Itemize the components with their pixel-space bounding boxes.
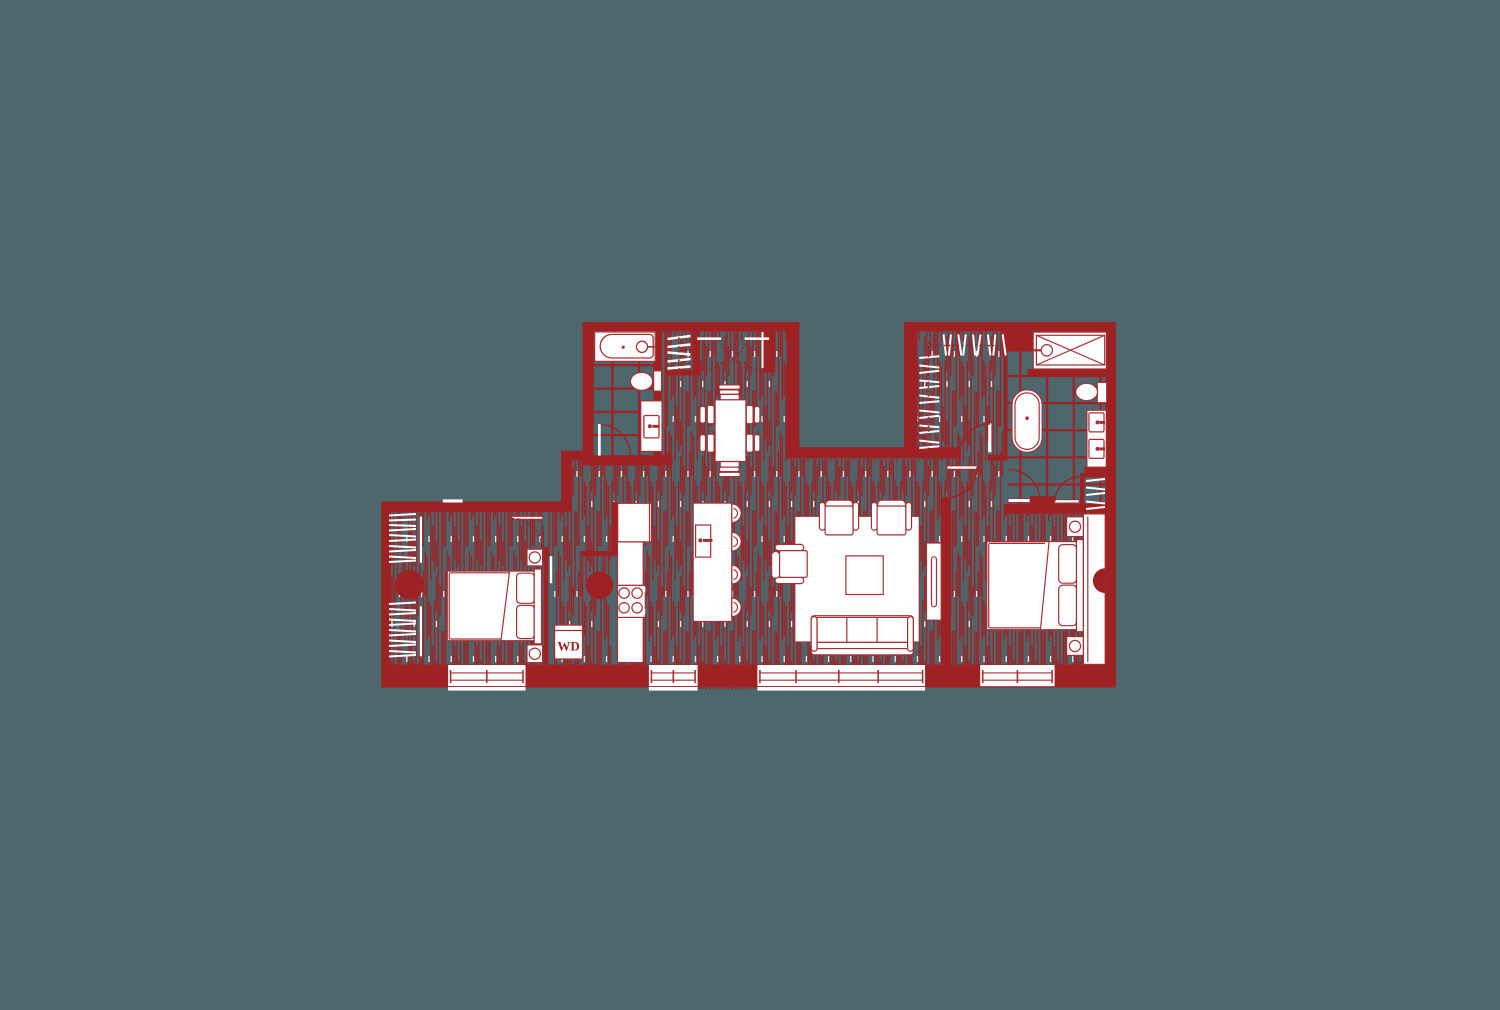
svg-text:WD: WD	[557, 638, 579, 653]
